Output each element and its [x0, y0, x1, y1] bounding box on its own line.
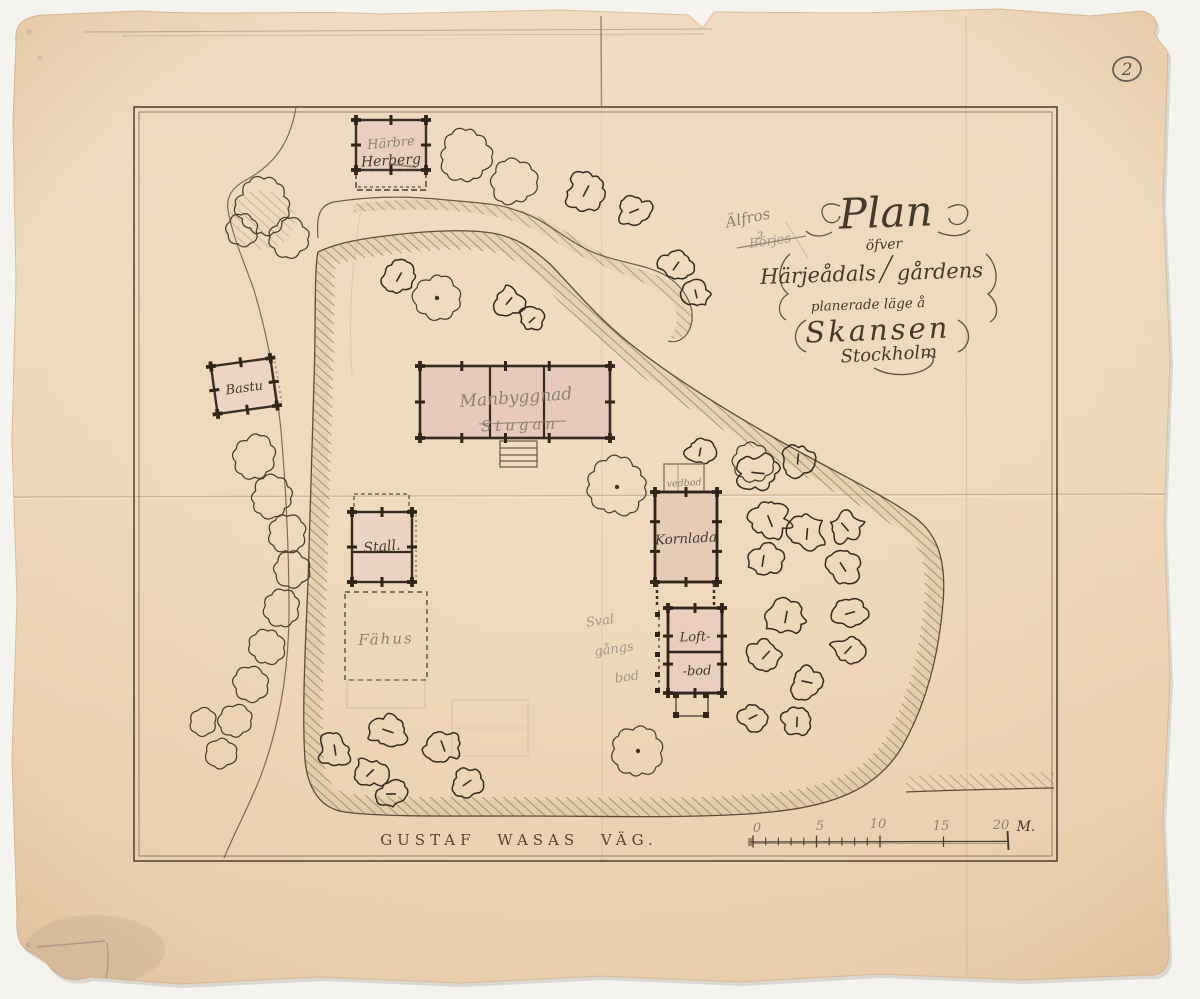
- log-joint-mark: [276, 401, 277, 411]
- log-joint-mark: [217, 409, 218, 419]
- paper-sheet: 2: [0, 0, 1200, 999]
- scale-label-unit: M.: [1016, 819, 1036, 835]
- scale-label-10: 10: [870, 817, 887, 832]
- log-joint-mark: [240, 357, 241, 367]
- paper-stain: [25, 915, 165, 985]
- scale-label-0: 0: [753, 821, 761, 836]
- log-joint-mark: [247, 405, 248, 415]
- scale-label-20: 20: [992, 818, 1010, 833]
- log-joint-mark: [269, 381, 279, 382]
- title-line3b: gårdens: [896, 258, 983, 285]
- title-line2: öfver: [865, 236, 904, 254]
- log-joint-mark: [209, 389, 219, 390]
- log-joint-mark: [210, 361, 211, 371]
- building-harbre: Härbre Herberg: [351, 115, 431, 190]
- archive-number: 2: [1121, 60, 1133, 80]
- title-line1: Plan: [837, 186, 933, 238]
- scanned-document: 2: [0, 0, 1200, 999]
- building-kornlada: Kornlada: [650, 487, 722, 587]
- stall-label: Stall.: [363, 537, 401, 556]
- fold-crease-vertical-faint: [602, 106, 603, 860]
- paper-aging-vignette: [0, 0, 1200, 999]
- stugan-label: Stugan: [481, 415, 560, 436]
- vedbod-label: vedbod: [666, 477, 701, 490]
- scale-label-15: 15: [933, 819, 950, 834]
- log-joint-mark: [270, 353, 271, 363]
- road-name-label: GUSTAF WASAS VÄG.: [380, 831, 658, 849]
- fahus-label: Fähus: [357, 629, 414, 649]
- plan-drawing: 2: [0, 0, 1200, 999]
- kornlada-label: Kornlada: [654, 529, 718, 548]
- title-line3a: Härjeådals: [759, 261, 877, 289]
- loftbod-wash: [668, 608, 722, 693]
- loftbod-label-2: -bod: [682, 664, 711, 680]
- scale-label-5: 5: [816, 819, 824, 834]
- loftbod-label-1: Loft-: [678, 629, 710, 645]
